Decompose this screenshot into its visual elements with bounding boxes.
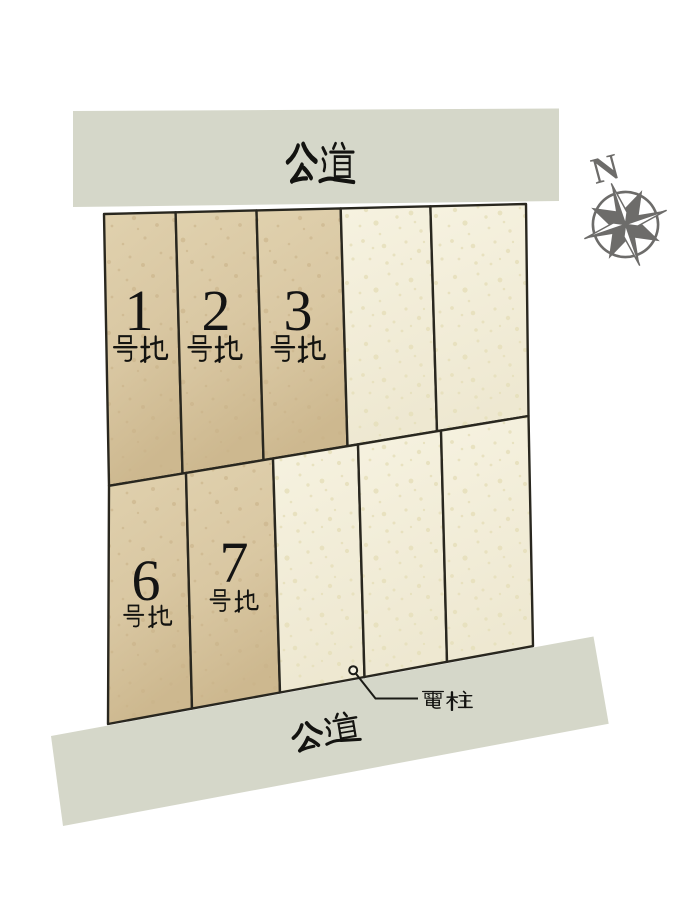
svg-text:2: 2 <box>202 278 231 343</box>
svg-text:1: 1 <box>125 278 154 343</box>
svg-text:3: 3 <box>284 278 313 343</box>
svg-text:N: N <box>587 146 624 193</box>
svg-text:7: 7 <box>220 530 249 595</box>
svg-text:6: 6 <box>132 548 161 613</box>
